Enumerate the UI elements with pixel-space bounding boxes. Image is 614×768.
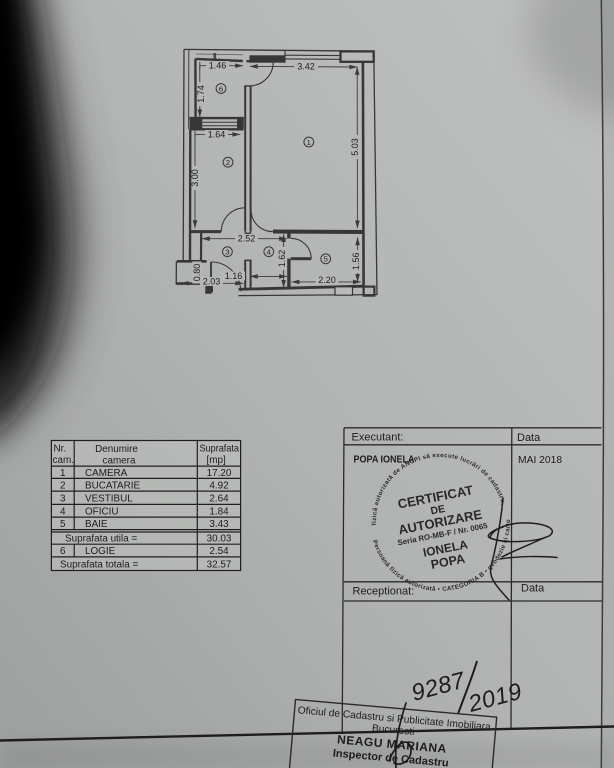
svg-text:LOGIE: LOGIE bbox=[85, 546, 116, 557]
svg-text:MAI 2018: MAI 2018 bbox=[518, 455, 562, 466]
svg-text:5.03: 5.03 bbox=[350, 138, 360, 156]
svg-text:Receptionat:: Receptionat: bbox=[353, 586, 415, 598]
svg-text:1.64: 1.64 bbox=[208, 130, 226, 140]
svg-text:2: 2 bbox=[60, 480, 66, 491]
svg-text:BAIE: BAIE bbox=[85, 519, 108, 530]
svg-text:3.42: 3.42 bbox=[297, 61, 315, 71]
svg-text:1.84: 1.84 bbox=[209, 506, 229, 517]
svg-text:cam.: cam. bbox=[53, 455, 75, 466]
svg-text:1.74: 1.74 bbox=[196, 85, 206, 103]
svg-text:2.03: 2.03 bbox=[203, 277, 221, 287]
svg-text:Nr.: Nr. bbox=[54, 444, 67, 455]
svg-text:1.46: 1.46 bbox=[209, 61, 227, 71]
svg-text:5: 5 bbox=[324, 255, 328, 264]
svg-text:Executant:: Executant: bbox=[352, 432, 404, 444]
svg-text:3: 3 bbox=[225, 248, 229, 257]
svg-text:camera: camera bbox=[103, 456, 136, 467]
svg-text:1.56: 1.56 bbox=[351, 253, 361, 271]
svg-text:3: 3 bbox=[60, 493, 66, 504]
svg-text:3.00: 3.00 bbox=[190, 169, 200, 187]
svg-text:2: 2 bbox=[226, 158, 230, 167]
svg-text:6: 6 bbox=[60, 546, 66, 557]
svg-text:2.20: 2.20 bbox=[318, 275, 336, 285]
svg-text:CAMERA: CAMERA bbox=[85, 468, 128, 479]
svg-text:1.16: 1.16 bbox=[225, 271, 243, 281]
svg-text:32.57: 32.57 bbox=[207, 559, 232, 570]
svg-text:2.64: 2.64 bbox=[209, 493, 229, 504]
svg-text:1.62: 1.62 bbox=[277, 250, 287, 268]
svg-text:4.92: 4.92 bbox=[209, 480, 228, 491]
svg-text:Denumire: Denumire bbox=[95, 444, 138, 455]
svg-text:4: 4 bbox=[60, 506, 66, 517]
svg-text:BUCATARIE: BUCATARIE bbox=[85, 480, 140, 491]
svg-text:4: 4 bbox=[267, 248, 271, 257]
svg-text:Suprafata totala =: Suprafata totala = bbox=[60, 559, 138, 570]
svg-text:1: 1 bbox=[60, 468, 66, 479]
svg-text:2.54: 2.54 bbox=[209, 546, 229, 557]
svg-text:17.20: 17.20 bbox=[207, 468, 232, 479]
svg-text:1: 1 bbox=[307, 138, 311, 147]
svg-text:2.52: 2.52 bbox=[238, 234, 256, 244]
svg-text:Suprafata: Suprafata bbox=[200, 444, 240, 455]
svg-text:30.03: 30.03 bbox=[207, 534, 232, 545]
svg-text:[mp]: [mp] bbox=[207, 455, 226, 466]
svg-text:Suprafata utila =: Suprafata utila = bbox=[65, 534, 137, 545]
svg-text:6: 6 bbox=[219, 84, 223, 93]
svg-text:3.43: 3.43 bbox=[209, 519, 229, 530]
svg-text:5: 5 bbox=[60, 519, 66, 530]
svg-text:OFICIU: OFICIU bbox=[85, 506, 118, 517]
svg-text:Data: Data bbox=[521, 583, 545, 595]
svg-text:Data: Data bbox=[517, 432, 541, 444]
svg-text:VESTIBUL: VESTIBUL bbox=[85, 493, 133, 504]
